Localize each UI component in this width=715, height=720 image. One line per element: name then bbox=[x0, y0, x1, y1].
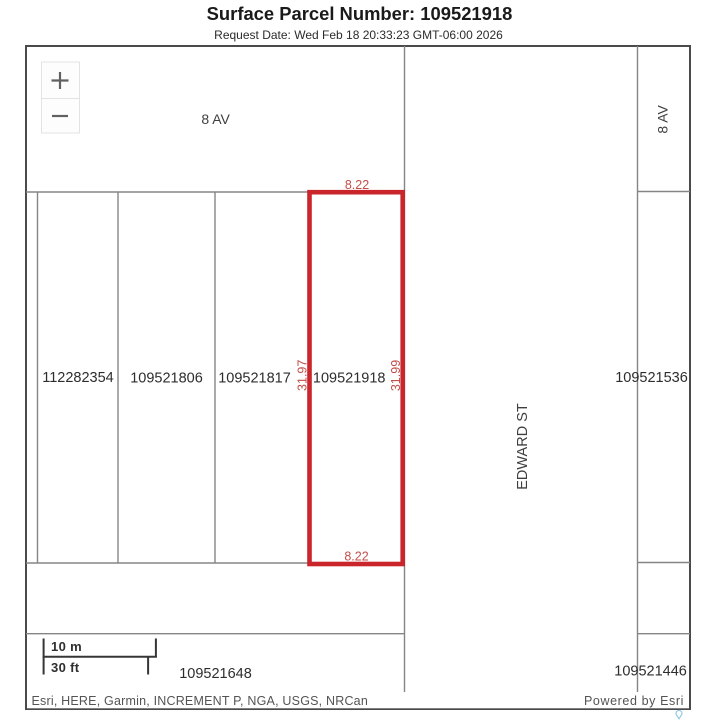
svg-text:Powered by Esri: Powered by Esri bbox=[584, 694, 684, 708]
svg-text:8.22: 8.22 bbox=[345, 178, 369, 192]
svg-text:8 AV: 8 AV bbox=[201, 111, 230, 127]
svg-text:31.97: 31.97 bbox=[296, 360, 310, 391]
svg-text:10 m: 10 m bbox=[51, 639, 82, 654]
svg-text:8 AV: 8 AV bbox=[654, 104, 670, 133]
svg-text:109521806: 109521806 bbox=[130, 370, 203, 386]
svg-text:31.99: 31.99 bbox=[389, 360, 403, 391]
svg-text:8.22: 8.22 bbox=[344, 550, 368, 564]
svg-text:112282354: 112282354 bbox=[42, 370, 114, 386]
svg-text:30 ft: 30 ft bbox=[51, 660, 80, 675]
svg-text:109521918: 109521918 bbox=[313, 371, 386, 387]
svg-text:109521648: 109521648 bbox=[179, 666, 252, 682]
svg-text:Esri, HERE, Garmin, INCREMENT: Esri, HERE, Garmin, INCREMENT P, NGA, US… bbox=[32, 694, 369, 708]
svg-text:109521446: 109521446 bbox=[614, 663, 687, 679]
svg-text:109521817: 109521817 bbox=[218, 371, 291, 387]
svg-text:EDWARD ST: EDWARD ST bbox=[515, 403, 531, 490]
svg-text:109521536: 109521536 bbox=[615, 370, 688, 386]
